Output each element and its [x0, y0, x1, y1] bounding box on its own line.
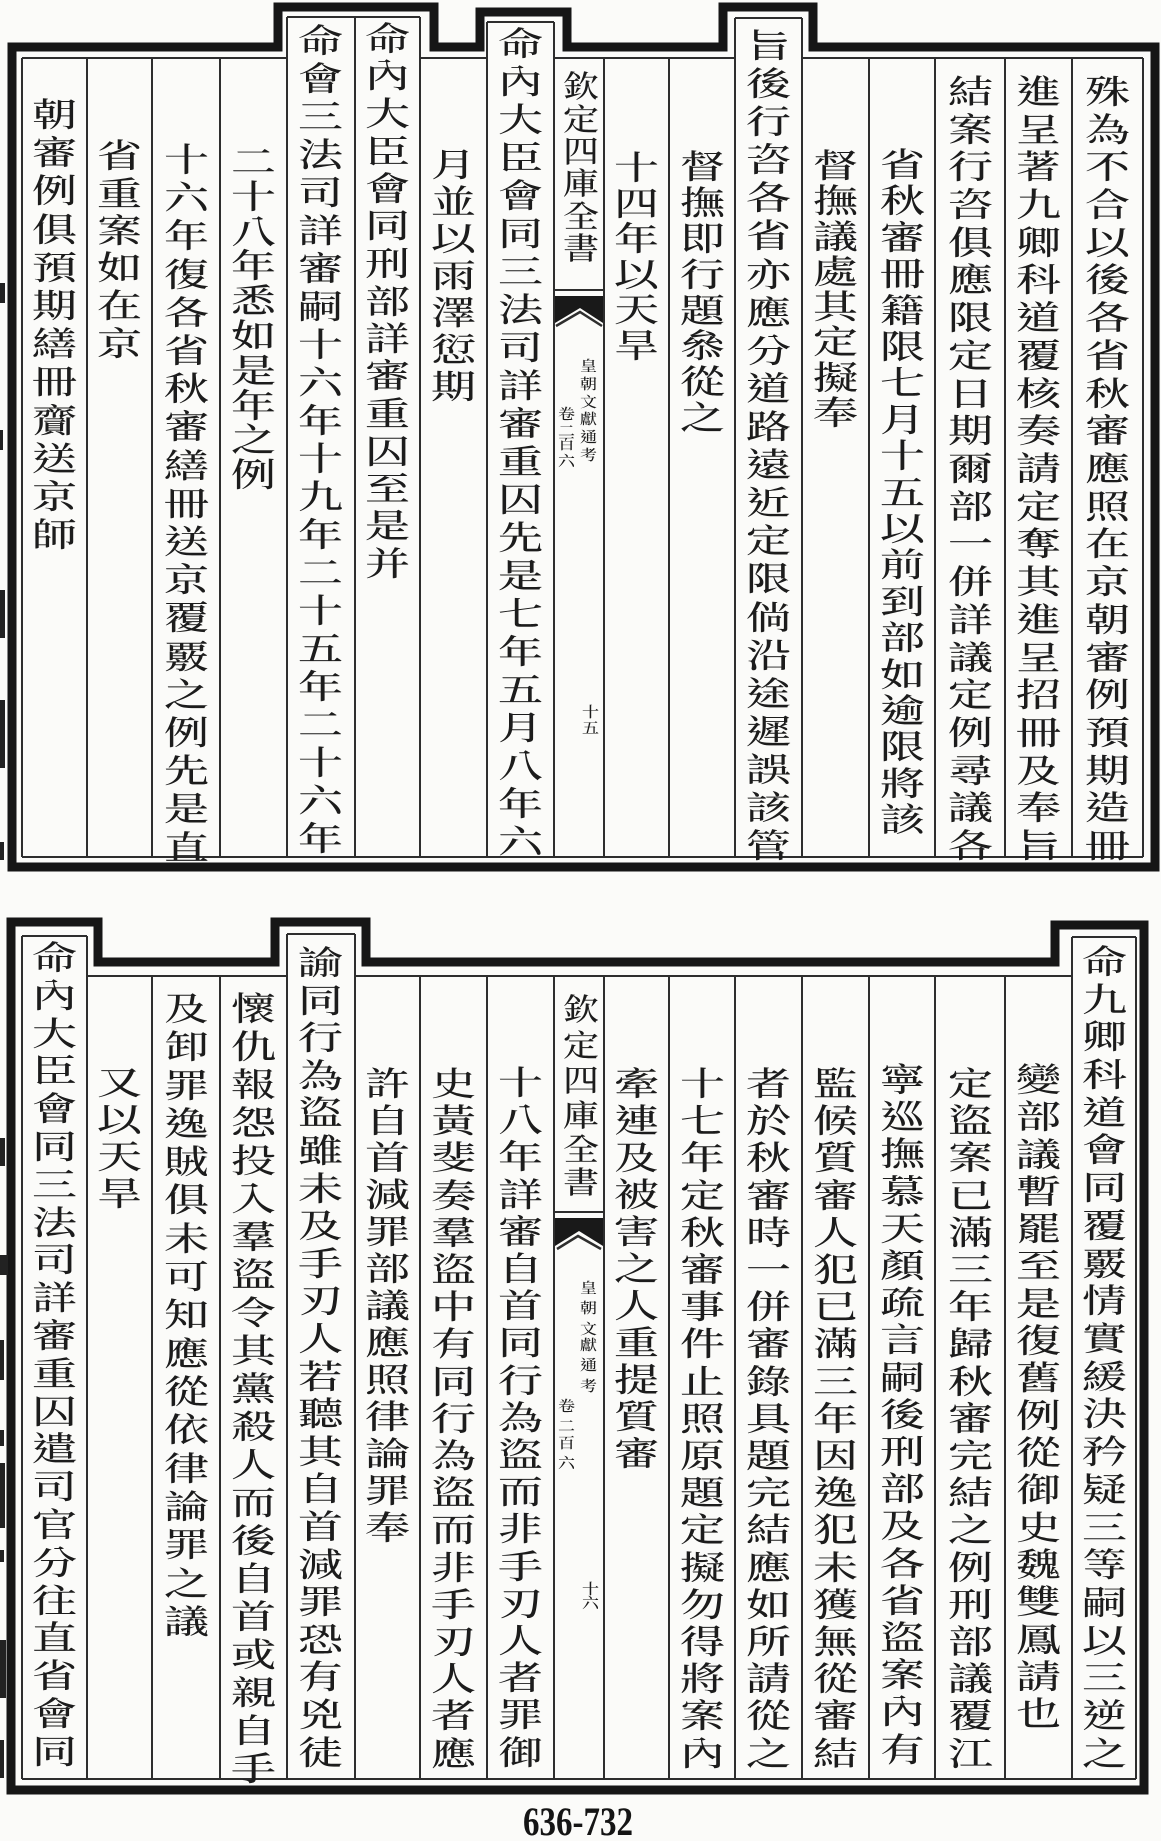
svg-text:636-732: 636-732	[523, 1799, 633, 1841]
